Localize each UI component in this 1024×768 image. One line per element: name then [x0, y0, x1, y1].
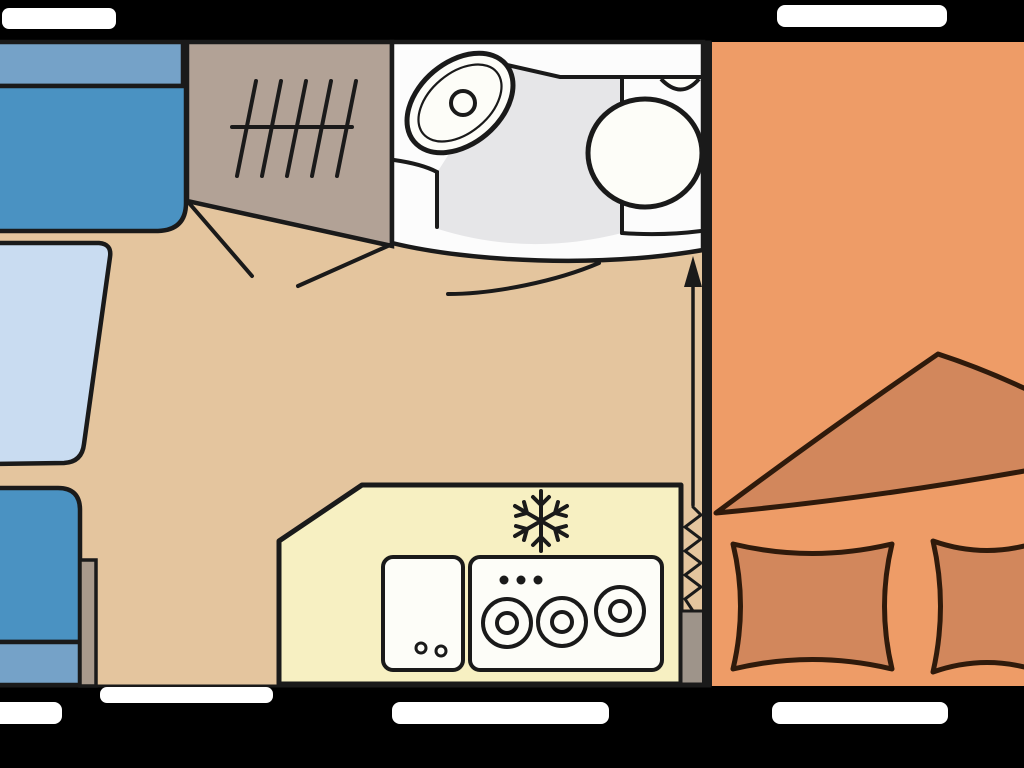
window-bottom-center — [392, 702, 609, 724]
floorplan-canvas — [0, 0, 1024, 768]
partition-wall — [702, 42, 712, 686]
window-top-left — [2, 8, 116, 29]
hob-control-dot-1 — [500, 576, 509, 585]
rear-seat-cushion — [0, 488, 80, 642]
caravan-floorplan — [0, 0, 1024, 768]
seat-side-panel — [80, 560, 96, 686]
window-bottom-left — [0, 702, 62, 724]
toilet-bowl — [588, 99, 702, 207]
bed-pillow-right — [933, 541, 1024, 672]
entry-door — [100, 687, 273, 703]
front-seat-backrest — [0, 42, 183, 86]
window-bottom-right — [772, 702, 948, 724]
front-seat-cushion — [0, 86, 186, 231]
window-top-right — [777, 5, 947, 27]
hob-control-dot-3 — [534, 576, 543, 585]
kitchen — [279, 485, 681, 684]
rear-seat-backrest — [0, 642, 80, 685]
bed-pillow-left — [733, 544, 892, 669]
hob-control-dot-2 — [517, 576, 526, 585]
washbasin-drain — [451, 91, 475, 115]
